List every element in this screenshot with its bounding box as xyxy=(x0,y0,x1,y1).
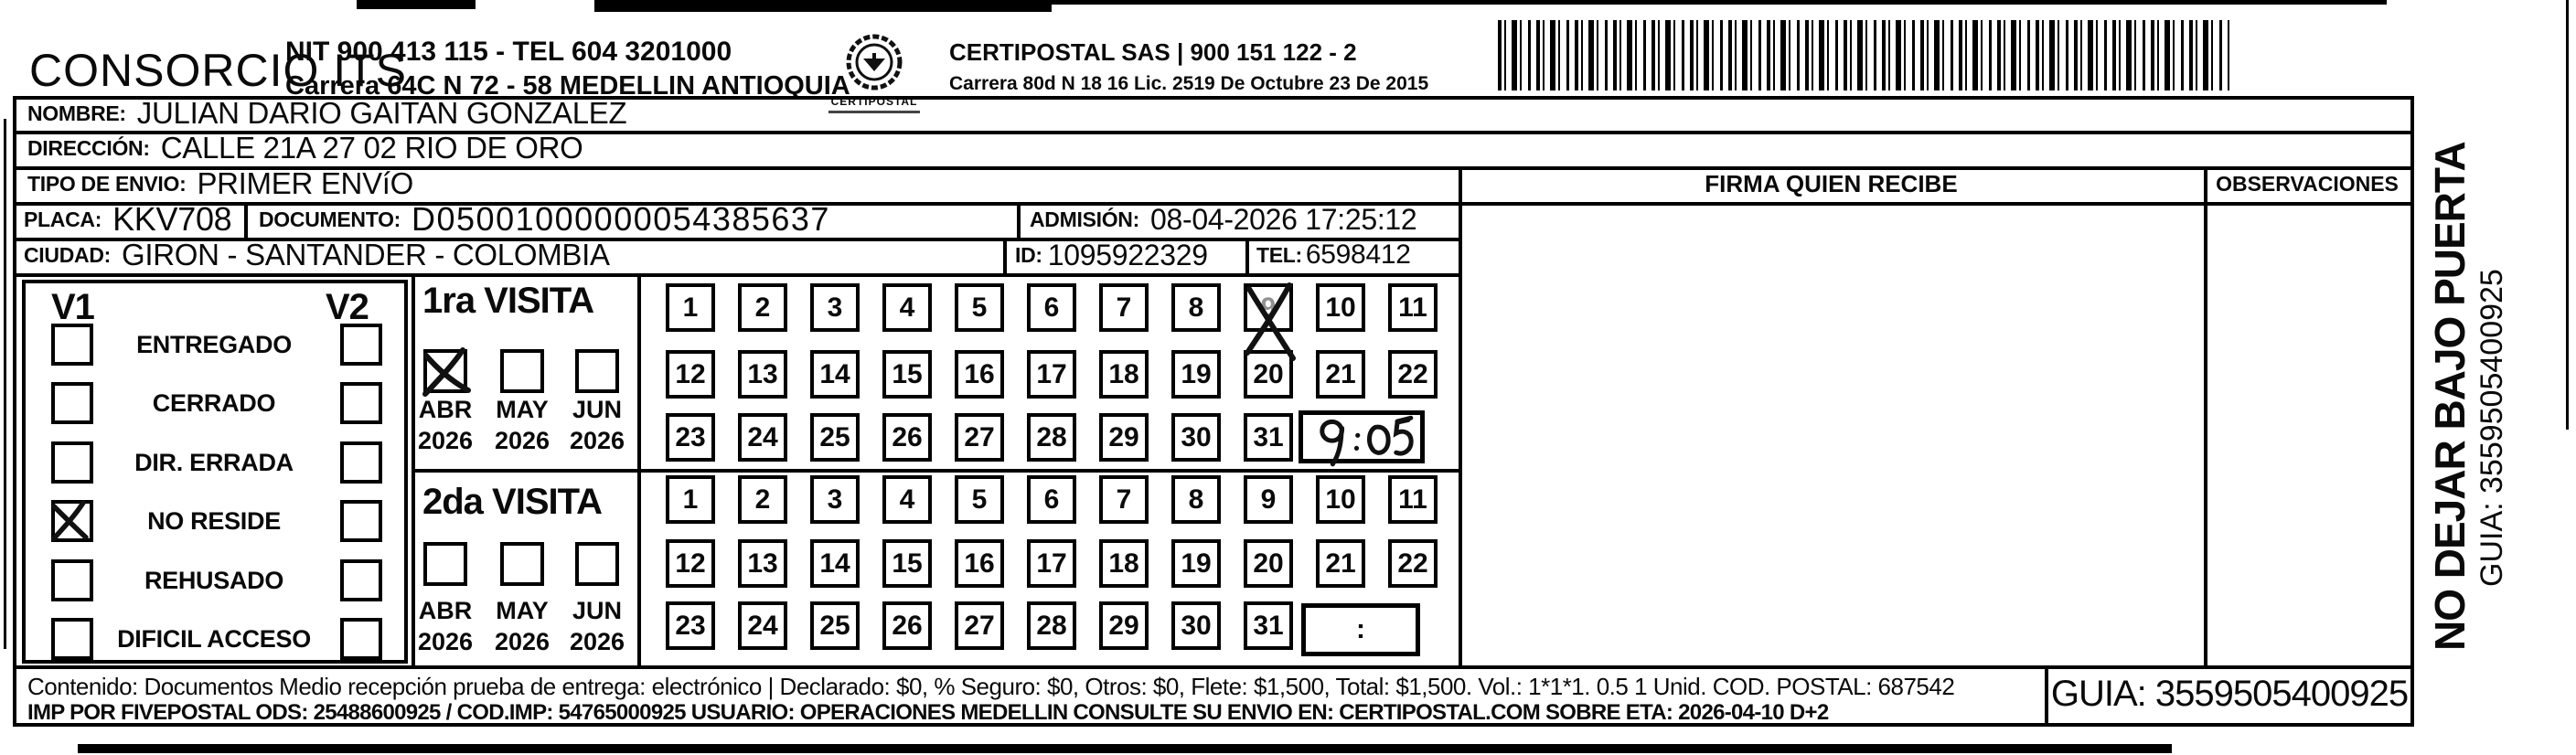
documento-value: D05001000000054385637 xyxy=(412,200,830,239)
second-visit-month-checkbox-abr xyxy=(423,542,467,586)
footer-imp-line: IMP POR FIVEPOSTAL ODS: 25488600925 / CO… xyxy=(27,700,1828,726)
id-value: 1095922329 xyxy=(1048,239,1208,272)
first-visit-day-28: 28 xyxy=(1027,413,1076,462)
second-visit-day-28: 28 xyxy=(1027,601,1076,650)
second-visit-day-31: 31 xyxy=(1244,601,1293,650)
nombre-label: NOMBRE: xyxy=(27,101,126,126)
second-visit-day-1: 1 xyxy=(666,475,715,524)
first-visit-day-13: 13 xyxy=(738,350,787,399)
second-visit-day-11: 11 xyxy=(1388,475,1438,524)
border-line xyxy=(1017,202,1021,238)
sender-nit-line: NIT 900 413 115 - TEL 604 3201000 xyxy=(285,37,732,68)
second-visit-day-16: 16 xyxy=(955,539,1004,588)
second-visit-day-15: 15 xyxy=(882,539,932,588)
border-line xyxy=(1245,238,1249,273)
placa-cell: PLACA: KKV708 xyxy=(24,204,231,235)
nombre-value: JULIAN DARIO GAITAN GONZALEZ xyxy=(137,96,627,131)
scan-artifact xyxy=(2566,0,2569,430)
second-visit-day-26: 26 xyxy=(882,601,932,650)
observaciones-area xyxy=(2207,206,2407,662)
second-visit-day-12: 12 xyxy=(666,539,715,588)
second-visit-day-21: 21 xyxy=(1316,539,1365,588)
first-visit-cell: 1ra VISITA ABR2026MAY2026JUN2026 xyxy=(412,273,637,469)
second-visit-title: 2da VISITA xyxy=(422,482,602,523)
first-visit-day-7: 7 xyxy=(1099,283,1149,332)
first-visit-month-checkbox-may xyxy=(500,349,544,393)
observaciones-header: OBSERVACIONES xyxy=(2207,168,2407,199)
second-visit-day-8: 8 xyxy=(1171,475,1221,524)
first-visit-day-3: 3 xyxy=(810,283,860,332)
second-visit-day-24: 24 xyxy=(738,601,787,650)
firma-header: FIRMA QUIEN RECIBE xyxy=(1462,168,2200,199)
first-visit-day-19: 19 xyxy=(1171,350,1221,399)
documento-label: DOCUMENTO: xyxy=(259,207,401,232)
second-visit-day-14: 14 xyxy=(810,539,860,588)
status-label-dificil-acceso: DIFICIL ACCESO xyxy=(99,625,329,654)
first-visit-month-label: ABR xyxy=(413,396,477,424)
first-visit-day-6: 6 xyxy=(1027,283,1076,332)
first-visit-year-label: 2026 xyxy=(490,427,554,455)
second-visit-day-6: 6 xyxy=(1027,475,1076,524)
status-label-no-reside: NO RESIDE xyxy=(99,507,329,536)
v2-checkbox-dir-errada xyxy=(340,441,382,484)
certipostal-logo-icon xyxy=(841,31,907,97)
side-note-warning: NO DEJAR BAJO PUERTA xyxy=(2425,102,2474,651)
status-label-entregado: ENTREGADO xyxy=(99,331,329,359)
v2-checkbox-no-reside xyxy=(340,500,382,542)
ciudad-value: GIRON - SANTANDER - COLOMBIA xyxy=(122,238,610,272)
v1-checkbox-dificil-acceso xyxy=(51,618,93,660)
second-visit-month-label: MAY xyxy=(490,597,554,625)
first-visit-day-25: 25 xyxy=(810,413,860,462)
second-visit-day-27: 27 xyxy=(955,601,1004,650)
first-visit-day-27: 27 xyxy=(955,413,1004,462)
second-visit-year-label: 2026 xyxy=(565,628,629,656)
first-visit-day-15: 15 xyxy=(882,350,932,399)
v1-checkbox-rehusado xyxy=(51,559,93,601)
direccion-label: DIRECCIÓN: xyxy=(27,136,150,161)
first-visit-day-14: 14 xyxy=(810,350,860,399)
v1-column-header: V1 xyxy=(51,287,94,328)
first-visit-day-4: 4 xyxy=(882,283,932,332)
first-visit-day-grid: 1234567891011121314151617181920212223242… xyxy=(637,273,1459,469)
firma-signature-area xyxy=(1462,206,2200,662)
first-visit-day-12: 12 xyxy=(666,350,715,399)
scan-artifact xyxy=(1052,0,2387,5)
first-visit-day-17: 17 xyxy=(1027,350,1076,399)
border-line xyxy=(1003,238,1007,273)
second-visit-day-22: 22 xyxy=(1388,539,1438,588)
certipostal-company-line: CERTIPOSTAL SAS | 900 151 122 - 2 xyxy=(949,38,1357,67)
first-visit-day-9: 9 xyxy=(1244,283,1293,332)
logo-subcaption-line xyxy=(828,111,920,113)
tracking-barcode xyxy=(1498,20,2229,90)
second-visit-day-20: 20 xyxy=(1244,539,1293,588)
status-label-dir-errada: DIR. ERRADA xyxy=(99,449,329,477)
second-visit-year-label: 2026 xyxy=(413,628,477,656)
border-line xyxy=(2410,96,2414,727)
second-visit-day-17: 17 xyxy=(1027,539,1076,588)
documento-cell: DOCUMENTO: D05001000000054385637 xyxy=(259,204,830,235)
v2-column-header: V2 xyxy=(326,287,369,328)
second-visit-day-7: 7 xyxy=(1099,475,1149,524)
v1-checkbox-cerrado xyxy=(51,382,93,424)
status-label-rehusado: REHUSADO xyxy=(99,567,329,595)
v1-checkbox-no-reside xyxy=(51,500,93,542)
id-label: ID: xyxy=(1015,243,1042,268)
second-visit-month-label: ABR xyxy=(413,597,477,625)
first-visit-day-16: 16 xyxy=(955,350,1004,399)
first-visit-day-20: 20 xyxy=(1244,350,1293,399)
first-visit-day-30: 30 xyxy=(1171,413,1221,462)
tipo-envio-value: PRIMER ENVíO xyxy=(197,166,413,201)
second-visit-cell: 2da VISITA ABR2026MAY2026JUN2026 xyxy=(412,469,637,665)
first-visit-month-label: JUN xyxy=(565,396,629,424)
admision-label: ADMISIÓN: xyxy=(1030,207,1139,232)
v2-checkbox-entregado xyxy=(340,324,382,366)
first-visit-month-checkbox-jun xyxy=(575,349,619,393)
ciudad-cell: CIUDAD: GIRON - SANTANDER - COLOMBIA xyxy=(24,239,610,271)
border-line xyxy=(13,96,16,727)
second-visit-month-label: JUN xyxy=(565,597,629,625)
visit-status-panel: V1 V2 ENTREGADOCERRADODIR. ERRADANO RESI… xyxy=(22,280,408,664)
scan-artifact xyxy=(357,0,476,9)
v2-checkbox-rehusado xyxy=(340,559,382,601)
id-cell: ID: 1095922329 xyxy=(1015,239,1208,271)
handwritten-time xyxy=(1301,407,1425,473)
tipo-envio-label: TIPO DE ENVIO: xyxy=(27,172,186,197)
tel-value: 6598412 xyxy=(1306,239,1411,271)
first-visit-year-label: 2026 xyxy=(565,427,629,455)
first-visit-time-box xyxy=(1299,410,1425,463)
v2-checkbox-dificil-acceso xyxy=(340,618,382,660)
first-visit-day-11: 11 xyxy=(1388,283,1438,332)
first-visit-day-26: 26 xyxy=(882,413,932,462)
v2-checkbox-cerrado xyxy=(340,382,382,424)
scanned-postal-form: CONSORCIO ITS NIT 900 413 115 - TEL 604 … xyxy=(0,0,2576,755)
first-visit-day-2: 2 xyxy=(738,283,787,332)
second-visit-day-2: 2 xyxy=(738,475,787,524)
second-visit-year-label: 2026 xyxy=(490,628,554,656)
second-visit-day-10: 10 xyxy=(1316,475,1365,524)
label-edge-line xyxy=(78,744,2172,753)
first-visit-day-8: 8 xyxy=(1171,283,1221,332)
second-visit-day-18: 18 xyxy=(1099,539,1149,588)
footer-content-line: Contenido: Documentos Medio recepción pr… xyxy=(27,673,1954,701)
first-visit-month-label: MAY xyxy=(490,396,554,424)
direccion-row: DIRECCIÓN: CALLE 21A 27 02 RIO DE ORO xyxy=(27,133,583,164)
guia-number-cell: GUIA: 3559505400925 xyxy=(2048,669,2410,719)
second-visit-day-3: 3 xyxy=(810,475,860,524)
first-visit-day-24: 24 xyxy=(738,413,787,462)
second-visit-day-9: 9 xyxy=(1244,475,1293,524)
second-visit-day-13: 13 xyxy=(738,539,787,588)
second-visit-day-19: 19 xyxy=(1171,539,1221,588)
first-visit-year-label: 2026 xyxy=(413,427,477,455)
side-note: NO DEJAR BAJO PUERTA GUIA: 3559505400925 xyxy=(2425,102,2510,651)
second-visit-time-placeholder: : xyxy=(1356,614,1365,645)
placa-label: PLACA: xyxy=(24,207,102,232)
certipostal-address-line: Carrera 80d N 18 16 Lic. 2519 De Octubre… xyxy=(949,73,1428,95)
tel-cell: TEL: 6598412 xyxy=(1256,239,1411,271)
first-visit-day-29: 29 xyxy=(1099,413,1149,462)
second-visit-month-checkbox-may xyxy=(500,542,544,586)
first-visit-day-21: 21 xyxy=(1316,350,1365,399)
admision-cell: ADMISIÓN: 08-04-2026 17:25:12 xyxy=(1030,204,1416,235)
first-visit-title: 1ra VISITA xyxy=(422,281,593,322)
second-visit-month-checkbox-jun xyxy=(575,542,619,586)
second-visit-day-23: 23 xyxy=(666,601,715,650)
second-visit-day-25: 25 xyxy=(810,601,860,650)
side-note-guia: GUIA: 3559505400925 xyxy=(2474,102,2510,651)
nombre-row: NOMBRE: JULIAN DARIO GAITAN GONZALEZ xyxy=(27,98,626,129)
direccion-value: CALLE 21A 27 02 RIO DE ORO xyxy=(161,131,583,165)
ciudad-label: CIUDAD: xyxy=(24,243,111,268)
first-visit-day-10: 10 xyxy=(1316,283,1365,332)
second-visit-time-box: : xyxy=(1301,603,1420,656)
tipo-envio-row: TIPO DE ENVIO: PRIMER ENVíO xyxy=(27,168,413,199)
first-visit-day-31: 31 xyxy=(1244,413,1293,462)
second-visit-day-5: 5 xyxy=(955,475,1004,524)
first-visit-day-22: 22 xyxy=(1388,350,1438,399)
first-visit-day-23: 23 xyxy=(666,413,715,462)
scan-artifact xyxy=(4,119,6,649)
status-label-cerrado: CERRADO xyxy=(99,389,329,418)
second-visit-day-30: 30 xyxy=(1171,601,1221,650)
second-visit-day-grid: 1234567891011121314151617181920212223242… xyxy=(637,469,1459,665)
second-visit-day-4: 4 xyxy=(882,475,932,524)
placa-value: KKV708 xyxy=(112,200,231,239)
tel-label: TEL: xyxy=(1256,243,1302,268)
first-visit-day-5: 5 xyxy=(955,283,1004,332)
v1-checkbox-entregado xyxy=(51,324,93,366)
second-visit-day-29: 29 xyxy=(1099,601,1149,650)
scan-artifact xyxy=(594,0,1052,12)
first-visit-day-1: 1 xyxy=(666,283,715,332)
admision-value: 08-04-2026 17:25:12 xyxy=(1150,203,1416,237)
v1-checkbox-dir-errada xyxy=(51,441,93,484)
first-visit-day-18: 18 xyxy=(1099,350,1149,399)
border-line xyxy=(244,202,248,238)
first-visit-month-checkbox-abr xyxy=(423,349,467,393)
